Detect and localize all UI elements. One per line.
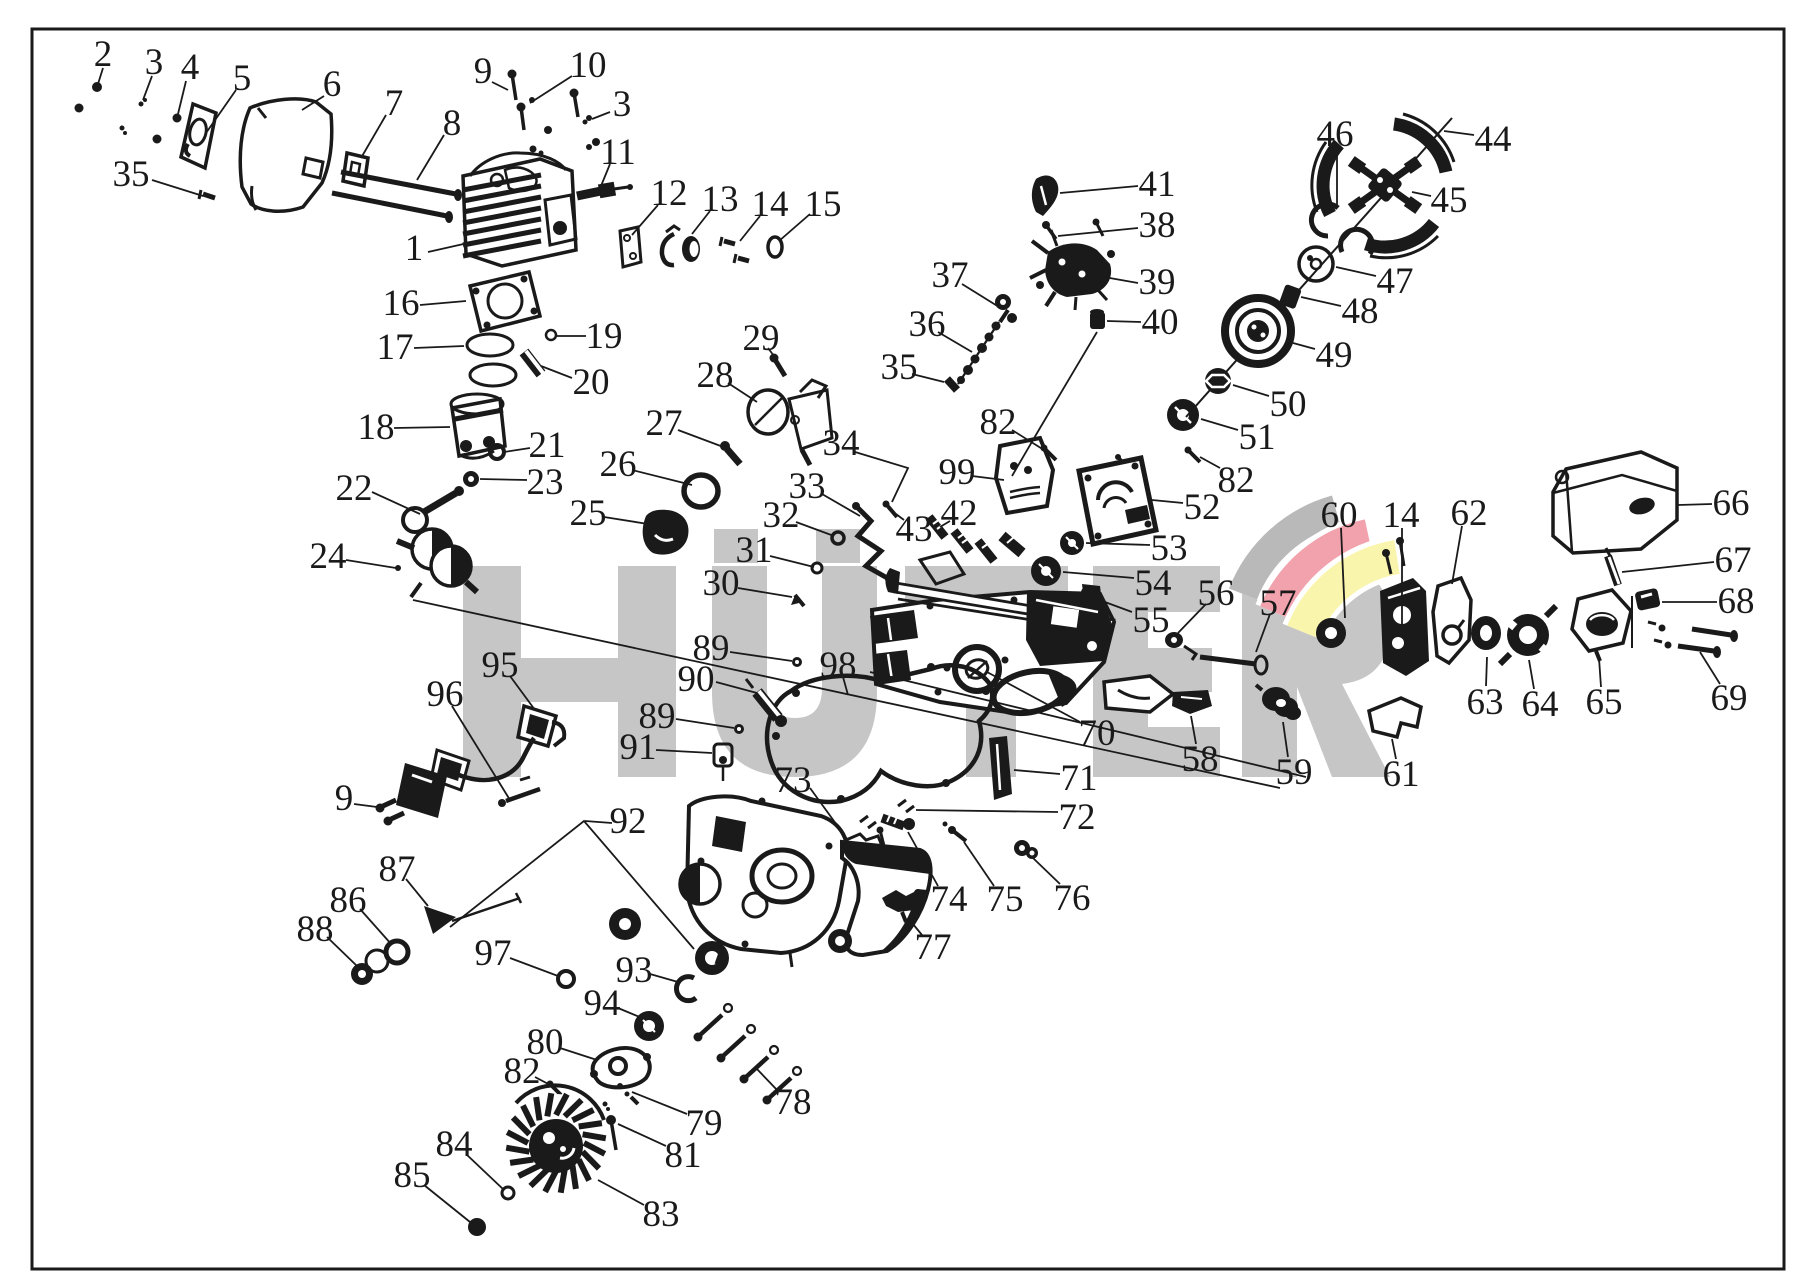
svg-text:42: 42 (941, 493, 978, 534)
svg-text:69: 69 (1711, 678, 1748, 719)
svg-text:16: 16 (383, 283, 420, 324)
svg-text:92: 92 (610, 801, 647, 842)
svg-text:67: 67 (1715, 540, 1752, 581)
svg-text:48: 48 (1342, 291, 1379, 332)
svg-text:44: 44 (1475, 119, 1512, 160)
svg-text:75: 75 (987, 879, 1024, 920)
svg-text:60: 60 (1321, 495, 1358, 536)
svg-text:25: 25 (570, 493, 607, 534)
svg-text:45: 45 (1431, 180, 1468, 221)
svg-text:64: 64 (1522, 684, 1559, 725)
svg-text:30: 30 (703, 563, 740, 604)
svg-text:47: 47 (1377, 261, 1414, 302)
svg-text:17: 17 (377, 327, 414, 368)
svg-text:39: 39 (1139, 262, 1176, 303)
svg-text:37: 37 (932, 255, 969, 296)
svg-text:84: 84 (436, 1124, 473, 1165)
svg-text:3: 3 (145, 42, 164, 83)
svg-text:78: 78 (775, 1082, 812, 1123)
svg-text:36: 36 (909, 304, 946, 345)
svg-text:4: 4 (181, 47, 200, 88)
svg-text:73: 73 (775, 760, 812, 801)
svg-text:11: 11 (600, 132, 636, 173)
svg-text:96: 96 (427, 674, 464, 715)
svg-text:35: 35 (881, 347, 918, 388)
svg-text:23: 23 (527, 462, 564, 503)
svg-text:62: 62 (1451, 493, 1488, 534)
svg-text:88: 88 (297, 909, 334, 950)
svg-text:49: 49 (1316, 335, 1353, 376)
svg-text:31: 31 (736, 530, 773, 571)
svg-text:52: 52 (1184, 487, 1221, 528)
svg-text:66: 66 (1713, 483, 1750, 524)
svg-text:27: 27 (646, 403, 683, 444)
svg-text:24: 24 (310, 536, 347, 577)
svg-text:20: 20 (573, 362, 610, 403)
svg-text:8: 8 (443, 103, 462, 144)
svg-text:7: 7 (385, 83, 404, 124)
svg-text:82: 82 (980, 402, 1017, 443)
svg-text:82: 82 (504, 1051, 541, 1092)
svg-text:63: 63 (1467, 682, 1504, 723)
svg-text:91: 91 (620, 727, 657, 768)
svg-text:74: 74 (931, 879, 968, 920)
svg-text:85: 85 (394, 1155, 431, 1196)
svg-text:86: 86 (330, 880, 367, 921)
svg-text:72: 72 (1059, 797, 1096, 838)
svg-text:29: 29 (743, 318, 780, 359)
svg-text:46: 46 (1317, 114, 1354, 155)
svg-text:10: 10 (570, 45, 607, 86)
svg-text:61: 61 (1383, 754, 1420, 795)
svg-text:18: 18 (358, 407, 395, 448)
svg-text:1: 1 (405, 228, 424, 269)
svg-text:71: 71 (1061, 758, 1098, 799)
svg-text:21: 21 (529, 425, 566, 466)
svg-text:94: 94 (584, 983, 621, 1024)
svg-text:22: 22 (336, 468, 373, 509)
svg-text:57: 57 (1260, 583, 1297, 624)
svg-text:34: 34 (823, 423, 860, 464)
svg-text:5: 5 (233, 58, 252, 99)
svg-text:55: 55 (1133, 600, 1170, 641)
svg-text:83: 83 (643, 1194, 680, 1235)
svg-text:99: 99 (939, 452, 976, 493)
svg-text:82: 82 (1218, 460, 1255, 501)
svg-text:93: 93 (616, 950, 653, 991)
svg-text:9: 9 (335, 778, 354, 819)
svg-text:26: 26 (600, 444, 637, 485)
svg-text:97: 97 (475, 933, 512, 974)
svg-text:58: 58 (1182, 739, 1219, 780)
svg-text:90: 90 (678, 659, 715, 700)
svg-text:59: 59 (1276, 752, 1313, 793)
svg-text:15: 15 (805, 184, 842, 225)
svg-text:28: 28 (697, 355, 734, 396)
svg-text:79: 79 (686, 1103, 723, 1144)
svg-text:41: 41 (1139, 164, 1176, 205)
svg-text:14: 14 (1383, 495, 1420, 536)
svg-text:19: 19 (586, 316, 623, 357)
svg-text:9: 9 (474, 51, 493, 92)
svg-text:70: 70 (1079, 713, 1116, 754)
svg-text:68: 68 (1718, 581, 1755, 622)
svg-text:98: 98 (820, 645, 857, 686)
svg-text:43: 43 (896, 509, 933, 550)
svg-text:6: 6 (323, 64, 342, 105)
svg-text:35: 35 (113, 154, 150, 195)
svg-text:54: 54 (1135, 563, 1172, 604)
svg-text:51: 51 (1239, 417, 1276, 458)
svg-text:38: 38 (1139, 205, 1176, 246)
svg-text:65: 65 (1586, 682, 1623, 723)
svg-text:3: 3 (613, 84, 632, 125)
svg-text:40: 40 (1142, 302, 1179, 343)
